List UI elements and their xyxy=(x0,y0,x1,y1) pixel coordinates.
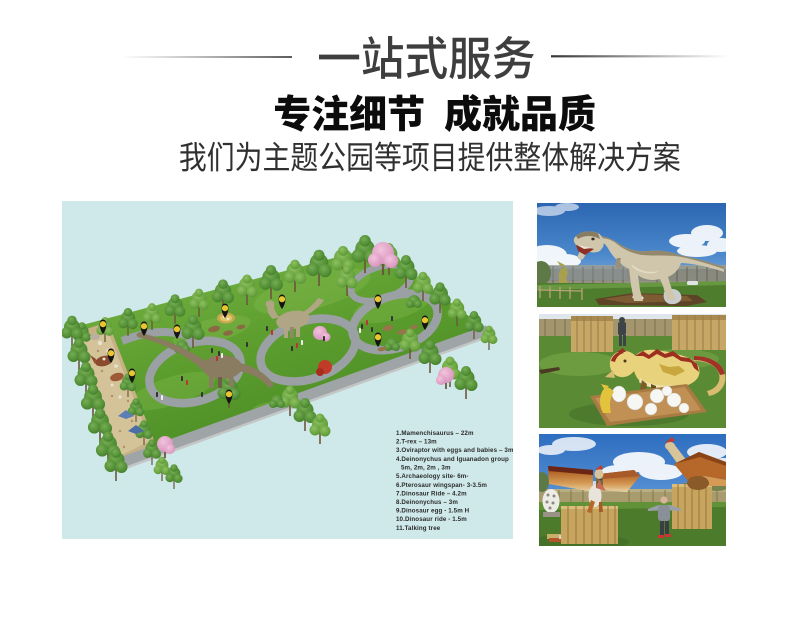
svg-text:7.Dinosaur Ride – 4.2m: 7.Dinosaur Ride – 4.2m xyxy=(396,490,467,497)
svg-text:3.Oviraptor with eggs and babi: 3.Oviraptor with eggs and babies – 3m xyxy=(396,447,513,454)
svg-text:8.Deinonychus – 3m: 8.Deinonychus – 3m xyxy=(396,499,458,506)
svg-text:11.Talking tree: 11.Talking tree xyxy=(396,525,441,532)
svg-text:6.Pterosaur wingspan- 3-3.5m: 6.Pterosaur wingspan- 3-3.5m xyxy=(396,482,487,489)
svg-text:1.Mamenchisaurus – 22m: 1.Mamenchisaurus – 22m xyxy=(396,430,474,437)
svg-text:5.Archaeology site- 6m-: 5.Archaeology site- 6m- xyxy=(396,473,469,480)
svg-text:9.Dinosaur egg - 1.5m H: 9.Dinosaur egg - 1.5m H xyxy=(396,508,470,515)
svg-text:2.T-rex – 13m: 2.T-rex – 13m xyxy=(396,439,437,446)
svg-text:5m, 2m, 2m , 3m: 5m, 2m, 2m , 3m xyxy=(401,465,451,472)
svg-text:4.Deinonychus and Iguanadon gr: 4.Deinonychus and Iguanadon group xyxy=(396,456,509,463)
svg-text:10.Dinosaur ride - 1.5m: 10.Dinosaur ride - 1.5m xyxy=(396,516,467,523)
